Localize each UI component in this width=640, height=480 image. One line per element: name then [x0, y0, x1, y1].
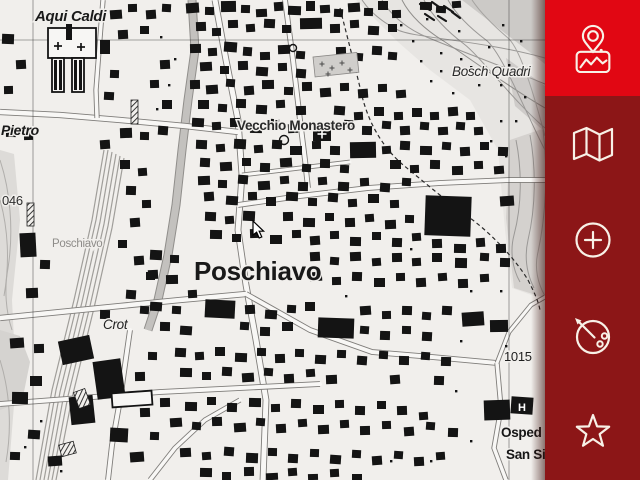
folded-map-icon — [569, 119, 617, 169]
map-label-vecchio-monastero: Vecchio Monastero — [237, 118, 355, 133]
map-label-aqui-caldi: Aqui Caldi — [34, 8, 107, 25]
map-canvas[interactable]: H Aqui CaldiPietro046Vecchio MonasteroPo… — [0, 0, 545, 480]
sidebar-item-favorites[interactable] — [545, 384, 640, 480]
map-label-bosch-quadri: Bosch Quadri — [452, 64, 531, 79]
map-pin-icon — [569, 23, 617, 73]
map-label-pietro: Pietro — [1, 122, 40, 138]
sidebar-item-style[interactable] — [545, 288, 640, 384]
hospital-symbol: H — [518, 402, 526, 414]
map-label-height-1015: 1015 — [504, 349, 532, 364]
topographic-map[interactable]: H Aqui CaldiPietro046Vecchio MonasteroPo… — [0, 0, 545, 480]
sidebar-item-add[interactable] — [545, 192, 640, 288]
map-label-poschiavo: Poschiavo — [194, 256, 321, 286]
sidebar — [545, 0, 640, 480]
palette-icon — [569, 311, 617, 361]
sidebar-item-position[interactable] — [545, 0, 640, 96]
map-label-poschiavo-station: Poschiavo — [52, 238, 102, 250]
plus-circle-icon — [569, 215, 617, 265]
map-label-ospedale: Osped — [501, 425, 542, 440]
sidebar-item-maps[interactable] — [545, 96, 640, 192]
star-icon — [569, 407, 617, 457]
map-label-height-046: 046 — [2, 193, 23, 208]
map-label-crot: Crot — [103, 317, 129, 332]
app-window: H Aqui CaldiPietro046Vecchio MonasteroPo… — [0, 0, 640, 480]
map-label-san-sisto: San Si — [506, 447, 545, 462]
